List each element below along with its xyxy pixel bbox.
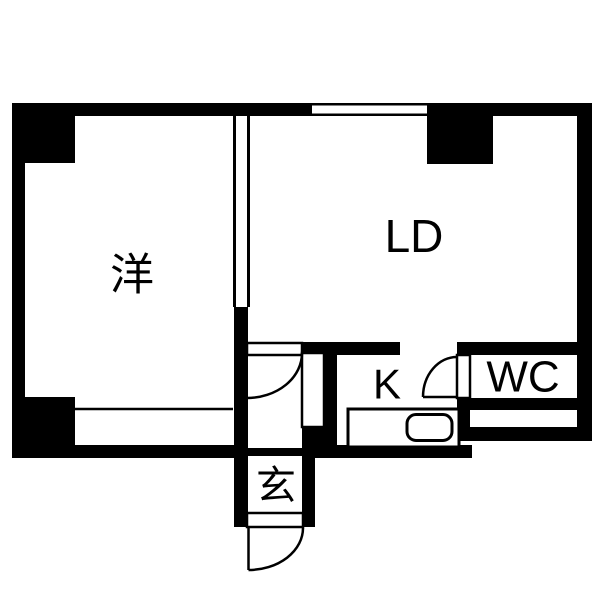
kitchen-fixtures (348, 409, 459, 447)
entrance-door-swing-arc (249, 528, 304, 570)
entrance-door (247, 513, 303, 570)
entrance-step-band (247, 448, 302, 456)
wall-block-under-door-leaf (302, 427, 337, 448)
top-wall (12, 103, 592, 116)
entrance-doorway (247, 513, 303, 527)
kitchen-sink (407, 415, 452, 441)
bottom-right-wall (457, 427, 592, 441)
window-glass (312, 106, 427, 114)
wc-door-swing-arc (423, 357, 457, 397)
entrance-label: 玄 (256, 464, 296, 508)
western-room-label: 洋 (110, 251, 154, 300)
wc-door-leaf (457, 355, 470, 398)
living-dining-label: LD (385, 210, 444, 262)
partition-solid-wall (234, 307, 248, 527)
hall-ld-door-swing-arc (247, 353, 302, 398)
interior-walls (75, 116, 592, 527)
kitchen-label: K (373, 361, 401, 408)
toilet-label: WC (486, 353, 559, 402)
wc-door (423, 355, 470, 398)
hall-ld-doorway (247, 343, 302, 355)
pillar-top-middle (427, 103, 493, 164)
floor-plan: 洋 LD K WC 玄 (0, 0, 600, 600)
right-wall (577, 103, 592, 441)
partition-channel-left-line (233, 116, 236, 307)
hall-ld-door-leaf (302, 353, 324, 427)
western-room-bottom-wall (12, 445, 247, 458)
partition-channel-right-line (247, 116, 250, 307)
hall-to-ld-door (247, 343, 324, 427)
